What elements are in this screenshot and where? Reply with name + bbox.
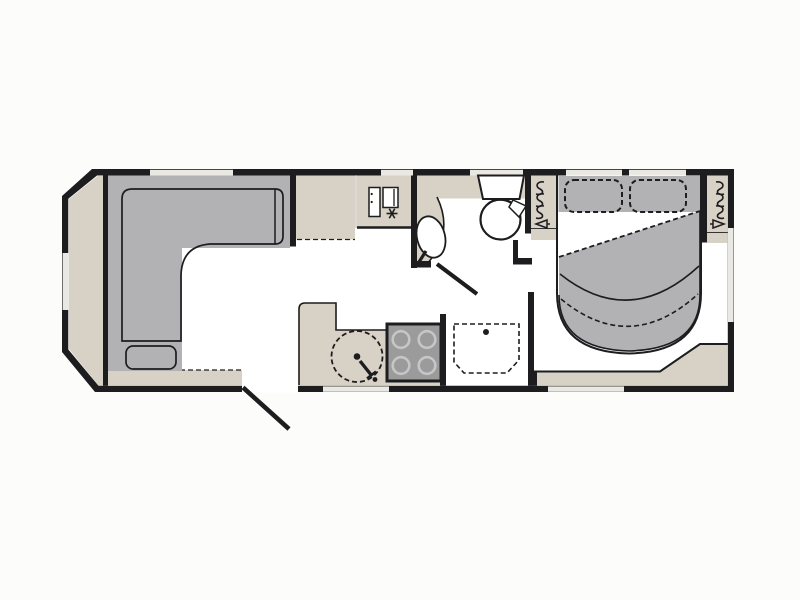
wall-toilet-right — [525, 176, 531, 234]
wall-washroom-left — [411, 176, 417, 269]
toilet-icon — [478, 176, 526, 240]
caravan-floorplan-svg — [0, 0, 800, 600]
wall-front-chest — [103, 176, 108, 386]
wall-sofa-kitchen — [290, 176, 296, 247]
overhead-cabinet — [296, 176, 355, 240]
wall-door-frame — [513, 240, 518, 259]
island-bed — [557, 176, 701, 354]
floorplan-page — [0, 0, 800, 600]
wall-wardrobe-right — [701, 176, 707, 243]
wall-bedroom-lower — [528, 292, 534, 374]
headboard-shelf — [559, 176, 701, 212]
wall-door-stub-left — [411, 261, 431, 268]
window-bedroom-bottom — [548, 386, 624, 391]
window-lounge-top — [150, 170, 233, 176]
toilet-cistern — [478, 176, 524, 200]
window-rear-side — [728, 228, 734, 322]
wardrobe-left-shelf — [531, 229, 556, 240]
window-bed-left — [566, 170, 622, 176]
wall-bedroom-foot — [528, 371, 537, 386]
drain-icon — [483, 329, 489, 335]
hob-icon — [387, 324, 441, 381]
window-kitchen-bottom — [323, 386, 389, 391]
wardrobe-right-shelf — [707, 233, 728, 243]
wardrobe-right — [707, 176, 728, 244]
window-kitchen-top — [381, 170, 413, 176]
wardrobe-left — [531, 176, 556, 241]
wall-door-frame-stub — [513, 258, 532, 265]
window-front — [63, 253, 69, 310]
window-bed-right — [629, 170, 686, 176]
lounge-base-ledge — [108, 370, 242, 386]
front-chest — [69, 176, 103, 386]
wall-shower-left — [440, 314, 446, 386]
